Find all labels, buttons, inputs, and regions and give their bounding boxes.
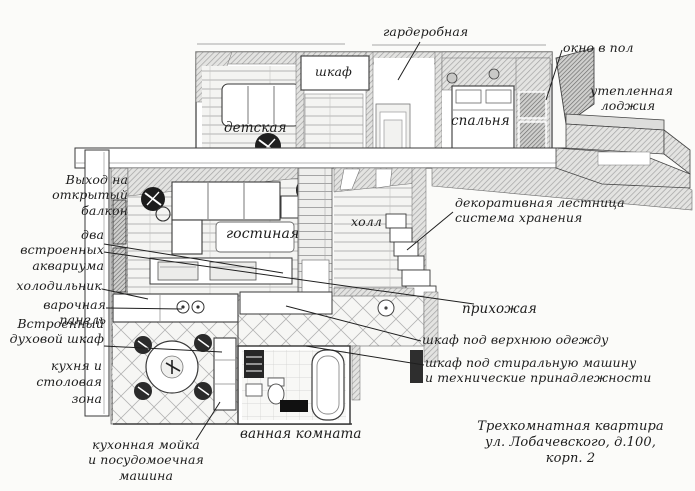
label-wardrobe: гардеробная (383, 24, 468, 39)
plan-caption: Трехкомнатная квартира ул. Лобачевского,… (468, 419, 673, 467)
loggia-block (556, 48, 690, 188)
label-fridge: холодильник (0, 278, 102, 293)
label-coat-closet: шкаф под верхнюю одежду (422, 332, 608, 347)
bathroom (238, 346, 350, 424)
room-label-closet: шкаф (315, 64, 352, 79)
coat-closet-box (240, 292, 332, 314)
upper-rooms (196, 44, 552, 159)
label-balcony-exit: Выход на открытый балкон (18, 172, 128, 218)
label-oven: Встроенный духовой шкаф (0, 316, 104, 347)
label-entry: прихожая (462, 301, 537, 317)
label-stairs: декоративная лестница система хранения (455, 195, 625, 226)
room-label-kids: детская (224, 120, 287, 136)
floor-plan-page: Выход на открытый балкон два встроенных … (0, 0, 695, 491)
brick-divider-wall (298, 168, 332, 306)
bath-mat (280, 400, 308, 412)
label-kitchen: кухня и столовая зона (0, 358, 102, 407)
room-label-bedroom: спальня (451, 113, 510, 129)
room-label-living: гостиная (226, 226, 299, 243)
entry-door (410, 350, 423, 383)
washbasin (246, 384, 262, 396)
label-bathroom: ванная комната (240, 426, 362, 442)
label-aquariums: два встроенных аквариума (0, 227, 104, 273)
oven-cabinet (214, 338, 236, 410)
sofa (172, 182, 280, 220)
label-window-floor: окно в пол (563, 40, 634, 55)
hall (334, 168, 436, 304)
room-label-hall: холл (351, 214, 382, 229)
label-washer-closet: шкаф под стиральную машину и технические… (425, 355, 651, 386)
label-kitchen-sink: кухонная мойка и посудомоечная машина (70, 437, 222, 483)
label-loggia: утепленная лоджия (590, 83, 666, 114)
